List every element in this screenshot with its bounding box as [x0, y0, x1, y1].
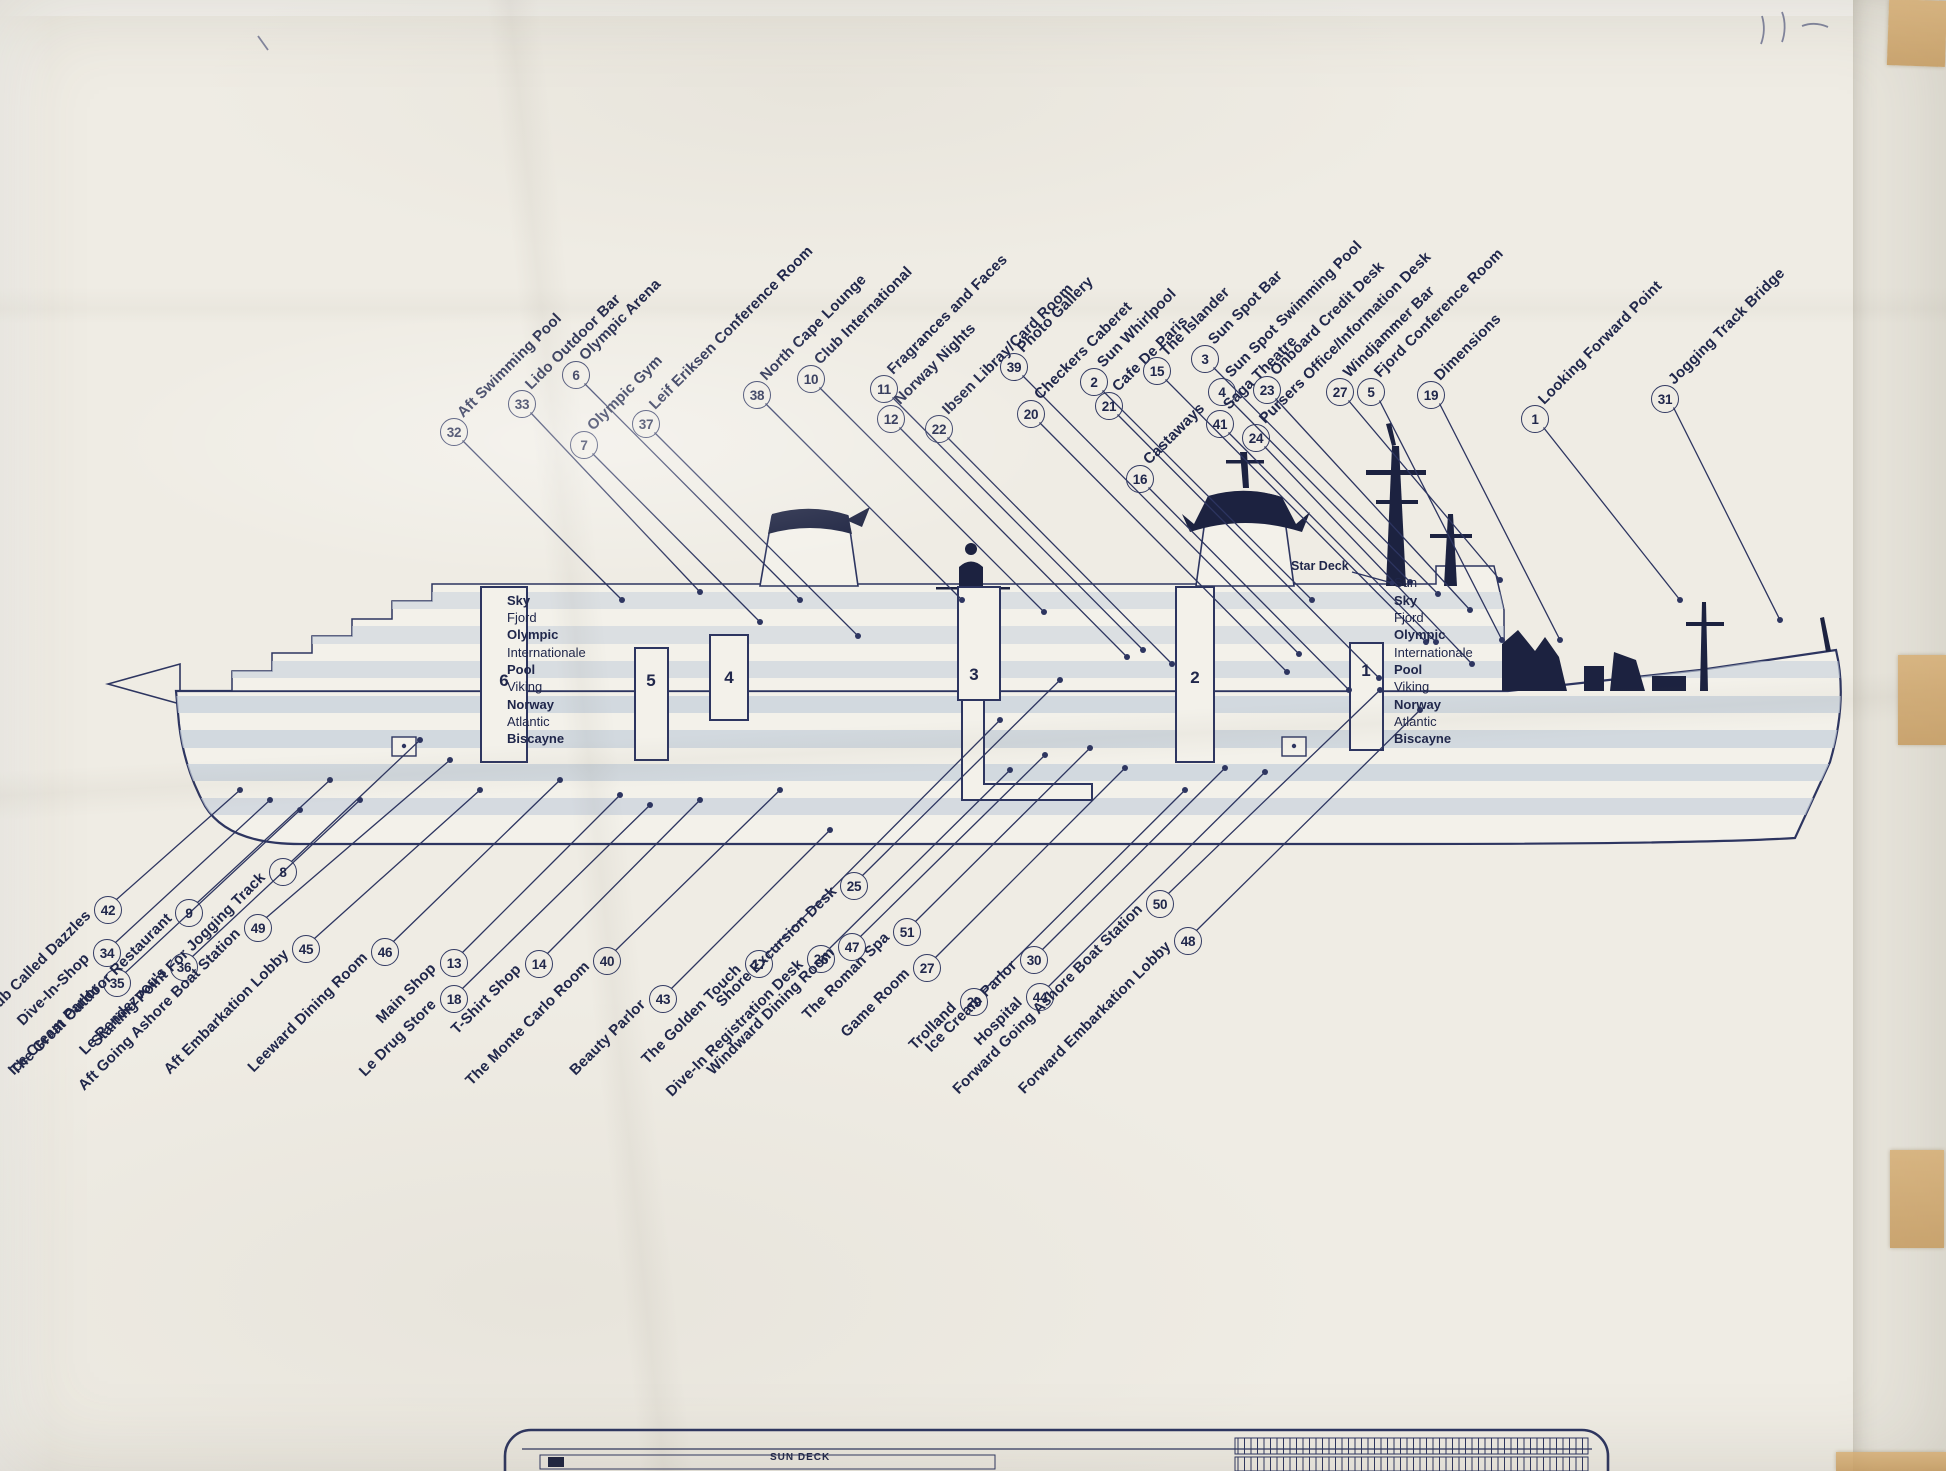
- leader-dot: [267, 797, 273, 803]
- leader-line: [1674, 408, 1781, 621]
- callout-number: 37: [632, 410, 660, 438]
- deck-name-left-atlantic: Atlantic: [507, 714, 550, 729]
- ship-profile-illustration: [0, 0, 1946, 1471]
- deck-name-left-norway: Norway: [507, 697, 554, 712]
- leader-dot: [1124, 654, 1130, 660]
- callout-number: 40: [593, 947, 621, 975]
- deck-name-left-olympic: Olympic: [507, 627, 558, 642]
- callout-number: 20: [1017, 400, 1045, 428]
- callout-number: 8: [269, 858, 297, 886]
- leader-dot: [617, 792, 623, 798]
- callout-number: 38: [743, 381, 771, 409]
- plan-dark-block: [548, 1457, 564, 1467]
- leader-dot: [1467, 607, 1473, 613]
- leader-dot: [1042, 752, 1048, 758]
- leader-dot: [959, 597, 965, 603]
- leader-dot: [1377, 687, 1383, 693]
- star-deck-label: Star Deck: [1291, 559, 1349, 573]
- aft-funnel: [760, 507, 870, 586]
- callout-number: 39: [1000, 353, 1028, 381]
- scanned-deck-diagram-page: Star Deck SUN DECK 32Aft Swimming Pool33…: [0, 0, 1946, 1471]
- callout-number: 15: [1143, 357, 1171, 385]
- leader-dot: [1557, 637, 1563, 643]
- leader-line: [463, 441, 623, 601]
- callout-number: 12: [877, 405, 905, 433]
- deck-name-right-olympic: Olympic: [1394, 627, 1445, 642]
- leader-dot: [797, 597, 803, 603]
- deck-name-right-internationale: Internationale: [1394, 645, 1473, 660]
- deck-name-right-viking: Viking: [1394, 679, 1429, 694]
- callout-number: 46: [371, 938, 399, 966]
- tape-mark: [1890, 1150, 1944, 1248]
- cabin-hatch-grid: [1235, 1438, 1588, 1454]
- leader-dot: [1284, 669, 1290, 675]
- callout-number: 13: [440, 949, 468, 977]
- leader-dot: [697, 589, 703, 595]
- callout-number: 9: [175, 899, 203, 927]
- leader-dot: [1057, 677, 1063, 683]
- deck-name-right-sky: Sky: [1394, 593, 1417, 608]
- tape-mark: [1836, 1452, 1946, 1471]
- deck-name-left-internationale: Internationale: [507, 645, 586, 660]
- callout-number: 5: [1357, 378, 1385, 406]
- leader-dot: [1435, 591, 1441, 597]
- callout-number: 45: [292, 935, 320, 963]
- callout-number: 22: [925, 415, 953, 443]
- leader-dot: [327, 777, 333, 783]
- leader-dot: [477, 787, 483, 793]
- leader-line: [531, 413, 701, 593]
- deck-name-left-pool: Pool: [507, 662, 535, 677]
- callout-number: 21: [1095, 392, 1123, 420]
- deck-name-right-biscayne: Biscayne: [1394, 731, 1451, 746]
- callout-number: 7: [570, 431, 598, 459]
- leader-dot: [757, 619, 763, 625]
- stair-tower-number-3: 3: [969, 665, 978, 685]
- leader-dot: [1497, 577, 1503, 583]
- tape-mark: [1887, 0, 1946, 67]
- leader-dot: [1376, 675, 1382, 681]
- deck-name-left-fjord: Fjord: [507, 610, 537, 625]
- callout-number: 42: [94, 896, 122, 924]
- leader-line: [1349, 401, 1501, 581]
- callout-number: 10: [797, 365, 825, 393]
- leader-line: [1544, 428, 1681, 601]
- leader-dot: [1777, 617, 1783, 623]
- callout-number: 1: [1521, 405, 1549, 433]
- leader-dot: [997, 717, 1003, 723]
- leader-dot: [1262, 769, 1268, 775]
- leader-dot: [777, 787, 783, 793]
- leader-dot: [619, 597, 625, 603]
- handwriting-mark: [258, 12, 1828, 50]
- leader-dot: [1296, 651, 1302, 657]
- leader-dot: [1677, 597, 1683, 603]
- leader-dot: [1499, 637, 1505, 643]
- callout-number: 30: [1020, 946, 1048, 974]
- leader-dot: [447, 757, 453, 763]
- deck-name-left-viking: Viking: [507, 679, 542, 694]
- callout-number: 27: [1326, 378, 1354, 406]
- callout-number: 43: [649, 985, 677, 1013]
- callout-number: 48: [1174, 927, 1202, 955]
- stair-tower-number-1: 1: [1361, 661, 1370, 681]
- leader-dot: [1469, 661, 1475, 667]
- leader-dot: [1087, 745, 1093, 751]
- deck-name-left-sky: Sky: [507, 593, 530, 608]
- callout-number: 24: [1242, 424, 1270, 452]
- callout-number: 25: [840, 872, 868, 900]
- stair-tower-number-4: 4: [724, 668, 733, 688]
- leader-dot: [1309, 597, 1315, 603]
- callout-number: 31: [1651, 385, 1679, 413]
- leader-dot: [647, 802, 653, 808]
- callout-number: 32: [440, 418, 468, 446]
- leader-dot: [1346, 687, 1352, 693]
- callout-number: 27: [913, 954, 941, 982]
- leader-dot: [1222, 765, 1228, 771]
- tape-mark: [1898, 655, 1946, 745]
- stair-tower-number-5: 5: [646, 671, 655, 691]
- callout-number: 50: [1146, 890, 1174, 918]
- callout-number: 16: [1126, 465, 1154, 493]
- leader-dot: [237, 787, 243, 793]
- deck-name-right-pool: Pool: [1394, 662, 1422, 677]
- callout-number: 6: [562, 361, 590, 389]
- deck-name-right-atlantic: Atlantic: [1394, 714, 1437, 729]
- deck-name-right-sun: Sun: [1394, 575, 1417, 590]
- leader-dot: [827, 827, 833, 833]
- stair-tower-number-2: 2: [1190, 668, 1199, 688]
- leader-dot: [1169, 661, 1175, 667]
- callout-number: 14: [525, 950, 553, 978]
- leader-dot: [1007, 767, 1013, 773]
- leader-dot: [1041, 609, 1047, 615]
- deck-name-right-norway: Norway: [1394, 697, 1441, 712]
- leader-dot: [417, 737, 423, 743]
- deck-name-left-biscayne: Biscayne: [507, 731, 564, 746]
- leader-dot: [697, 797, 703, 803]
- leader-line: [585, 384, 801, 601]
- callout-number: 51: [893, 918, 921, 946]
- leader-dot: [1182, 787, 1188, 793]
- leader-dot: [1140, 647, 1146, 653]
- stair-tower-number-6: 6: [499, 671, 508, 691]
- callout-number: 33: [508, 390, 536, 418]
- callout-number: 41: [1206, 410, 1234, 438]
- callout-number: 49: [244, 914, 272, 942]
- leader-dot: [1122, 765, 1128, 771]
- cabin-hatch-grid: [1235, 1457, 1588, 1471]
- callout-number: 19: [1417, 381, 1445, 409]
- leader-dot: [557, 777, 563, 783]
- sun-deck-plan-label: SUN DECK: [770, 1452, 830, 1463]
- callout-number: 3: [1191, 345, 1219, 373]
- lower-deck-plan: [505, 1430, 1608, 1471]
- deck-name-right-fjord: Fjord: [1394, 610, 1424, 625]
- leader-dot: [855, 633, 861, 639]
